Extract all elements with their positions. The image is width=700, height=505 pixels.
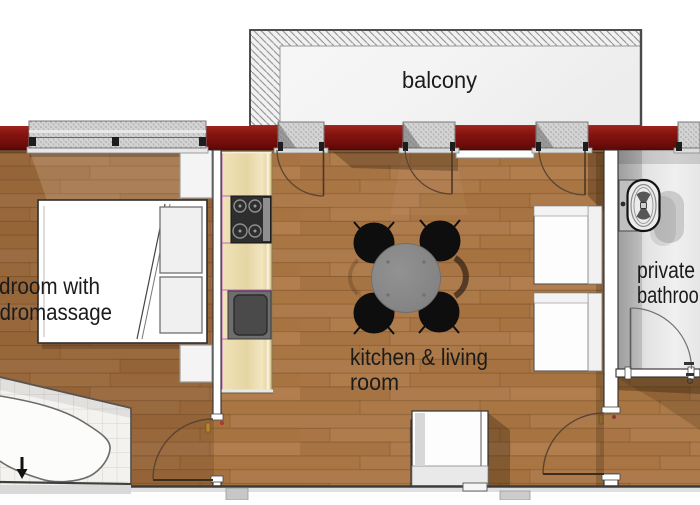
svg-text:bathroom: bathroom	[637, 282, 700, 308]
svg-text:room: room	[350, 369, 399, 395]
svg-text:balcony: balcony	[402, 67, 477, 93]
svg-text:hydromassage: hydromassage	[0, 299, 112, 325]
svg-text:bedroom with: bedroom with	[0, 273, 100, 299]
svg-text:private: private	[637, 257, 695, 283]
svg-text:kitchen & living: kitchen & living	[350, 344, 488, 370]
